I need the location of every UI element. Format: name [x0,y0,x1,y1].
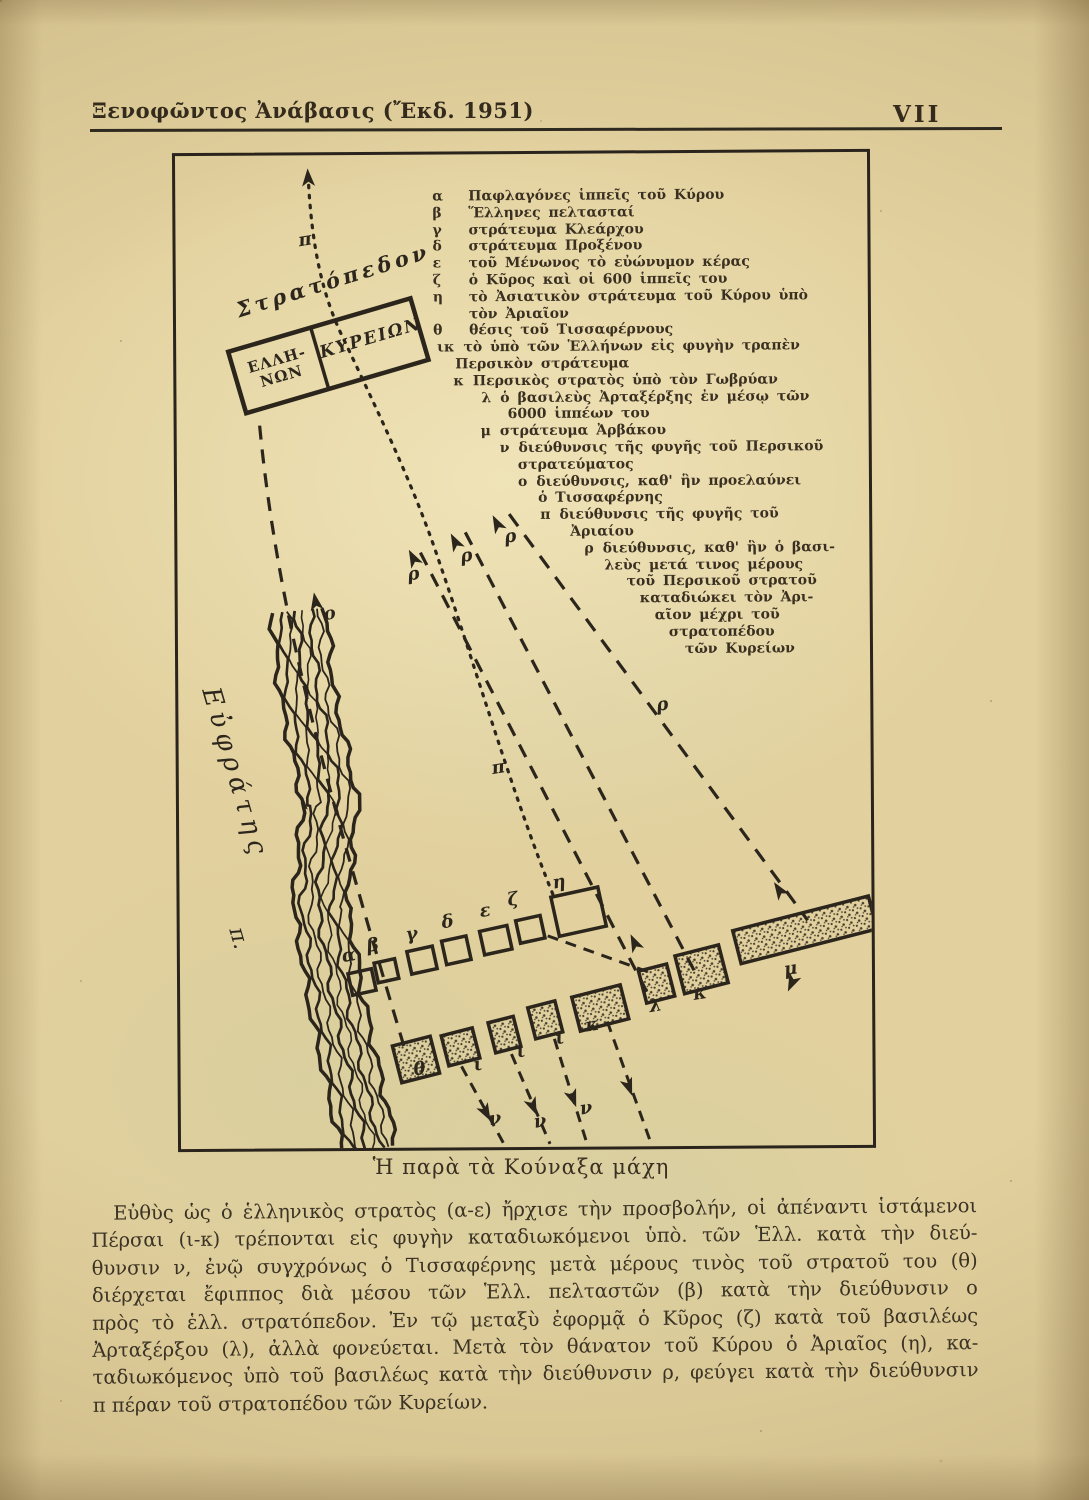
route-label-nu-1: ν [487,1109,502,1129]
unit-label-kappa-1: κ [584,1016,600,1036]
route-label-pi-1: π [297,230,313,250]
greek-unit-boxes [347,887,606,995]
route-label-pi-2: π [490,758,506,778]
unit-label-zeta: ζ [506,890,519,909]
persian-unit-boxes [391,896,873,1083]
map-legend: αΠαφλαγόνες ἱππεῖς τοῦ Κύρου βἝλληνες πε… [432,186,867,659]
page-number: VII [893,101,941,128]
body-paragraph: Εὐθὺς ὡς ὁ ἑλληνικὸς στρατὸς (α-ε) ἤρχισ… [91,1192,979,1419]
unit-label-gamma: γ [404,925,419,945]
scanned-book-page: { "page": { "header": { "title": "Ξενοφῶ… [0,0,1089,1500]
legend-line: λὁ βασιλεὺς Ἀρταξέρξης ἐν μέσῳ τῶν [433,387,865,406]
paper-specks [0,0,2,2]
legend-line: νδιεύθυνσις τῆς φυγῆς τοῦ Περσικοῦ [434,438,866,457]
battle-map-frame: Στρατόπεδον ΕΛΛΗ- ΝΩΝ ΚΥΡΕΙΩΝ Εὐφράτης π… [172,149,876,1152]
legend-line: τῶν Κυρείων [435,639,867,658]
route-label-nu-2: ν [533,1112,548,1132]
map-caption: Ἡ παρὰ τὰ Κούναξα μάχη [175,1155,867,1179]
unit-label-lambda: λ [648,996,663,1016]
legend-line: καταδιώκει τὸν Ἀρι- [435,589,867,608]
euphrates-river [269,608,395,1149]
unit-label-alpha: α [340,946,357,966]
mu-bar [733,896,873,964]
page-header-title: Ξενοφῶντος Ἀνάβασις (Ἔκδ. 1951) [92,98,534,123]
flight-nu-dashed-1 [462,1066,504,1144]
flight-nu-dashed-3 [554,1039,587,1144]
unit-label-kappa-2: κ [692,984,708,1004]
unit-label-mu: μ [783,959,799,979]
unit-label-eta: η [551,873,567,893]
route-label-nu-3: ν [578,1099,593,1119]
legend-line: ητὸ Ἀσιατικὸν στράτευμα τοῦ Κύρου ὑπὸ [433,287,865,306]
